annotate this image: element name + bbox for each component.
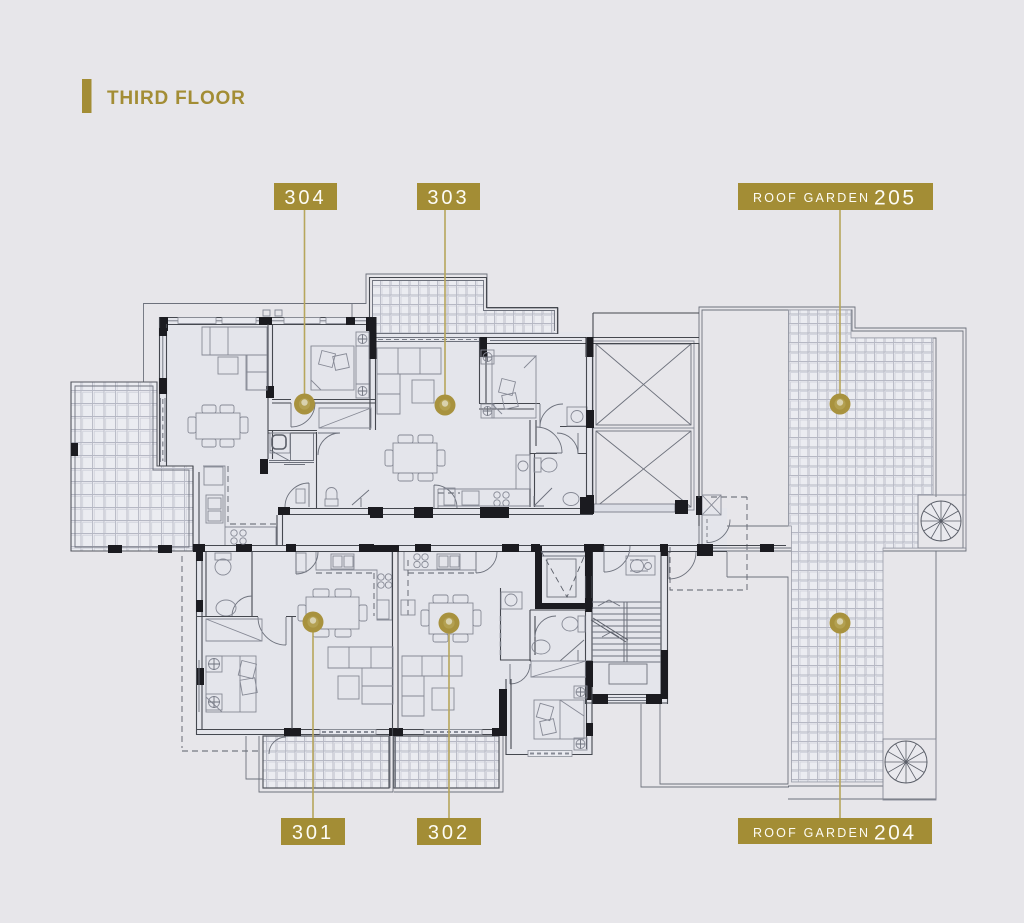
svg-text:ROOF GARDEN: ROOF GARDEN <box>753 191 870 205</box>
svg-text:303: 303 <box>427 187 469 209</box>
svg-text:204: 204 <box>874 822 917 845</box>
svg-text:ROOF GARDEN: ROOF GARDEN <box>753 826 870 840</box>
svg-text:205: 205 <box>874 187 917 210</box>
svg-text:301: 301 <box>292 822 334 844</box>
svg-text:THIRD FLOOR: THIRD FLOOR <box>107 88 246 109</box>
svg-text:302: 302 <box>428 822 470 844</box>
svg-text:304: 304 <box>284 187 326 209</box>
